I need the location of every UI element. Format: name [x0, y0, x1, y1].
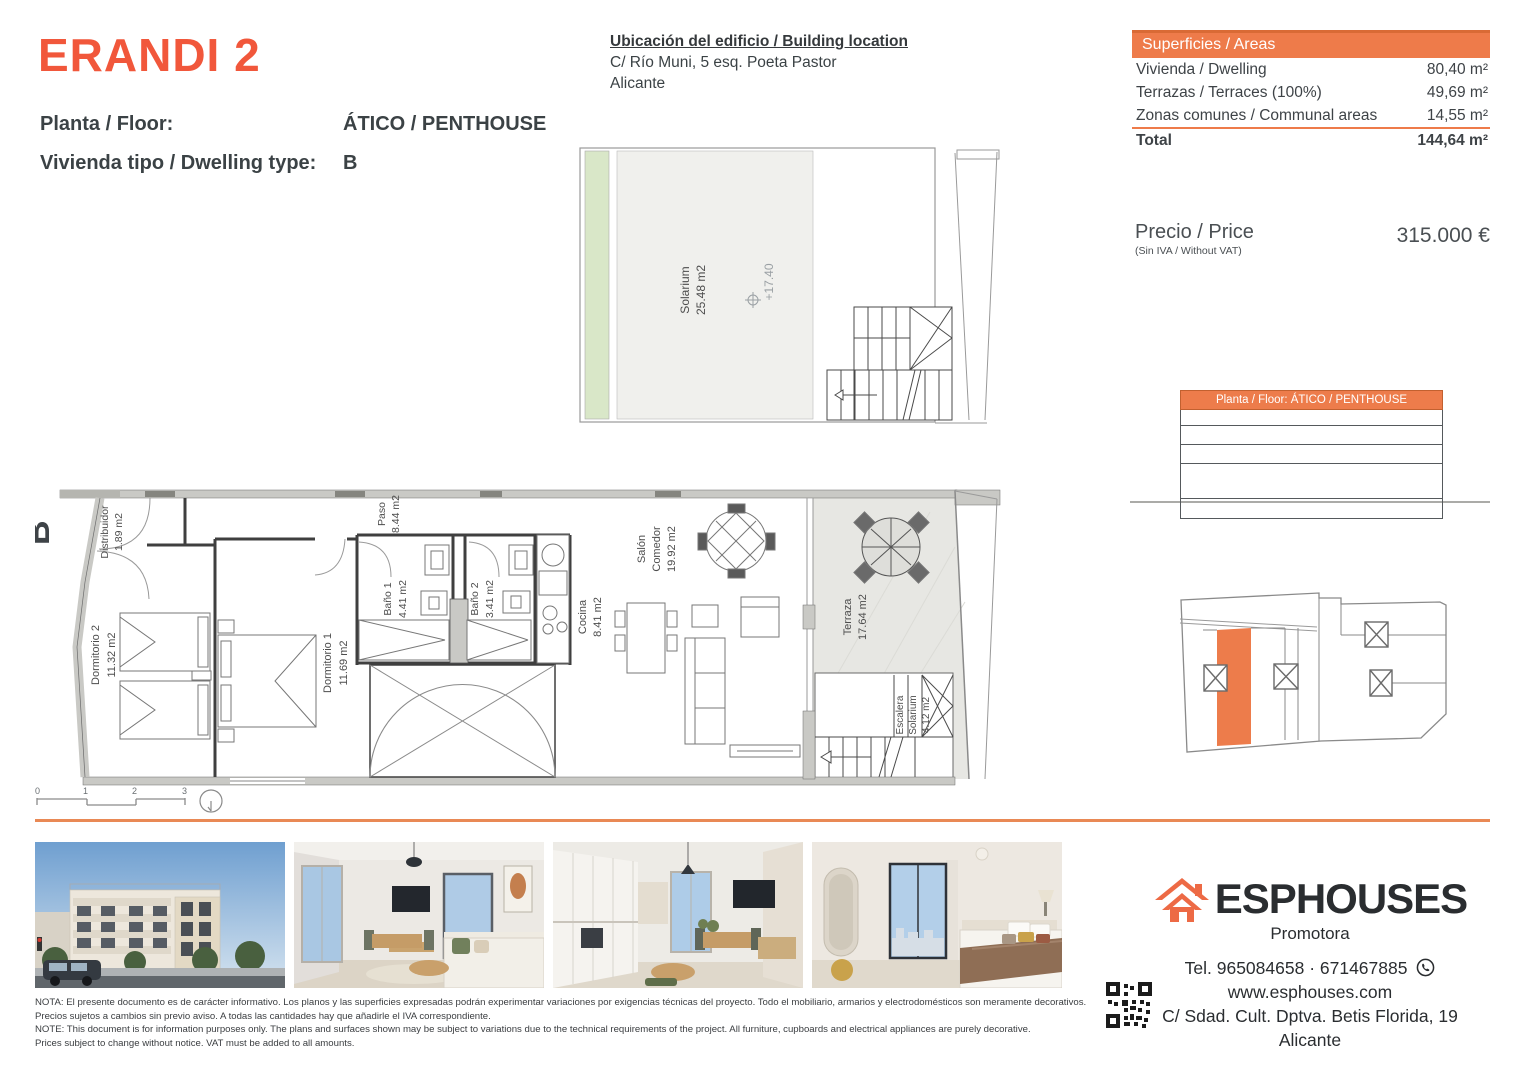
- price-value: 315.000 €: [1397, 224, 1490, 248]
- floor-key-header: Planta / Floor: ÁTICO / PENTHOUSE: [1180, 390, 1443, 410]
- solarium-label: Solarium: [678, 266, 692, 313]
- areas-table: Superficies / Areas Vivienda / Dwelling …: [1132, 30, 1490, 152]
- areas-table-title: Superficies / Areas: [1132, 30, 1490, 58]
- areas-row-value: 49,69 m²: [1427, 84, 1488, 102]
- areas-row-label: Terrazas / Terraces (100%): [1136, 84, 1322, 102]
- page-title: ERANDI 2: [38, 28, 261, 82]
- svg-text:Paso: Paso: [376, 502, 388, 526]
- building-location-title: Ubicación del edificio / Building locati…: [610, 33, 1030, 51]
- city-line: Alicante: [1098, 1028, 1522, 1052]
- north-arrow-icon: [200, 790, 222, 812]
- developer-tagline: Promotora: [1098, 924, 1522, 944]
- areas-total-row: Total 144,64 m²: [1132, 127, 1490, 152]
- svg-text:Salón: Salón: [636, 535, 648, 563]
- svg-text:3.41 m2: 3.41 m2: [484, 580, 496, 618]
- svg-text:19.92 m2: 19.92 m2: [666, 526, 678, 572]
- svg-text:1.89 m2: 1.89 m2: [113, 513, 125, 551]
- dwelling-type-value: B: [343, 152, 357, 175]
- solarium-plan: Solarium 25.48 m2 +17.40: [577, 142, 1012, 427]
- photo-living-room: [294, 842, 544, 988]
- patio-void: [370, 665, 555, 777]
- solarium-level: +17.40: [762, 263, 776, 300]
- svg-text:Distribuidor: Distribuidor: [99, 505, 111, 559]
- building-location-city: Alicante: [610, 75, 1030, 93]
- floor-label: Planta / Floor:: [40, 113, 173, 136]
- price-note: (Sin IVA / Without VAT): [1135, 245, 1254, 257]
- website-line[interactable]: www.esphouses.com: [1098, 980, 1522, 1004]
- photo-building-exterior: [35, 842, 285, 988]
- whatsapp-icon: [1416, 958, 1435, 977]
- floor-value: ÁTICO / PENTHOUSE: [343, 113, 546, 136]
- disclaimer-line: Precios sujetos a cambios sin previo avi…: [35, 1010, 1086, 1024]
- areas-row-value: 14,55 m²: [1427, 107, 1488, 125]
- areas-total-value: 144,64 m²: [1417, 132, 1488, 150]
- spec-sheet-page: ERANDI 2 Planta / Floor: ÁTICO / PENTHOU…: [0, 0, 1527, 1080]
- svg-text:Solarium: Solarium: [908, 695, 919, 734]
- photo-bedroom: [812, 842, 1062, 988]
- svg-text:Baño 1: Baño 1: [382, 582, 394, 615]
- svg-text:Comedor: Comedor: [651, 526, 663, 572]
- svg-text:11.32 m2: 11.32 m2: [106, 632, 118, 677]
- areas-row: Vivienda / Dwelling 80,40 m²: [1132, 58, 1490, 81]
- dwelling-type-label: Vivienda tipo / Dwelling type:: [40, 152, 316, 175]
- svg-text:2: 2: [132, 786, 137, 796]
- developer-brand: ESPHOUSES: [1215, 875, 1467, 923]
- svg-text:4.12 m2: 4.12 m2: [921, 696, 932, 733]
- main-floor-plan: B Distribuidor 1.89 m2 Dormitorio 2 11.3…: [35, 487, 1010, 792]
- svg-text:Escalera: Escalera: [895, 695, 906, 734]
- building-location-street: C/ Río Muni, 5 esq. Poeta Pastor: [610, 54, 1030, 72]
- developer-contact-block: ESPHOUSES Promotora Tel. 965084658 · 671…: [1098, 874, 1522, 1052]
- photo-kitchen: [553, 842, 803, 988]
- svg-text:Baño 2: Baño 2: [469, 582, 481, 615]
- areas-row-label: Vivienda / Dwelling: [1136, 61, 1267, 79]
- disclaimer-line: NOTA: El presente documento es de caráct…: [35, 996, 1086, 1010]
- areas-row-label: Zonas comunes / Communal areas: [1136, 107, 1377, 125]
- svg-text:Terraza: Terraza: [842, 598, 854, 636]
- svg-text:17.64 m2: 17.64 m2: [857, 594, 869, 640]
- qr-code: [1106, 982, 1152, 1028]
- divider-line: [35, 819, 1490, 822]
- unit-locator-plan: [1175, 588, 1475, 768]
- price-label: Precio / Price: [1135, 221, 1254, 244]
- scale-bar: 0 1 2 3: [35, 785, 265, 815]
- terrace-glass-wall: [803, 498, 815, 779]
- disclaimer-line: Prices subject to change without notice.…: [35, 1037, 1086, 1051]
- floor-key-table: Planta / Floor: ÁTICO / PENTHOUSE: [1180, 390, 1443, 519]
- svg-text:1: 1: [83, 786, 88, 796]
- svg-text:4.41 m2: 4.41 m2: [397, 580, 409, 618]
- building-location-block: Ubicación del edificio / Building locati…: [610, 33, 1030, 93]
- house-logo-icon: [1153, 874, 1211, 924]
- price-block: Precio / Price (Sin IVA / Without VAT) 3…: [1135, 221, 1490, 257]
- unit-letter: B: [35, 520, 57, 545]
- disclaimer-block: NOTA: El presente documento es de caráct…: [35, 996, 1086, 1050]
- areas-row: Terrazas / Terraces (100%) 49,69 m²: [1132, 81, 1490, 104]
- svg-text:8.41 m2: 8.41 m2: [592, 597, 604, 637]
- phone-line: Tel. 965084658 · 671467885: [1098, 956, 1522, 980]
- areas-row-value: 80,40 m²: [1427, 61, 1488, 79]
- areas-total-label: Total: [1136, 132, 1172, 150]
- photo-strip: [35, 842, 1062, 988]
- svg-text:3: 3: [182, 786, 187, 796]
- svg-text:Cocina: Cocina: [577, 599, 589, 634]
- svg-text:11.69 m2: 11.69 m2: [338, 640, 350, 685]
- address-line: C/ Sdad. Cult. Dptva. Betis Florida, 19: [1098, 1004, 1522, 1028]
- svg-text:8.44 m2: 8.44 m2: [390, 495, 402, 533]
- svg-text:0: 0: [35, 786, 40, 796]
- svg-text:Dormitorio 2: Dormitorio 2: [90, 625, 102, 685]
- solarium-area: 25.48 m2: [694, 265, 708, 315]
- svg-text:Dormitorio 1: Dormitorio 1: [322, 633, 334, 693]
- solarium-green-strip: [585, 151, 609, 419]
- areas-row: Zonas comunes / Communal areas 14,55 m²: [1132, 104, 1490, 127]
- disclaimer-line: NOTE: This document is for information p…: [35, 1023, 1086, 1037]
